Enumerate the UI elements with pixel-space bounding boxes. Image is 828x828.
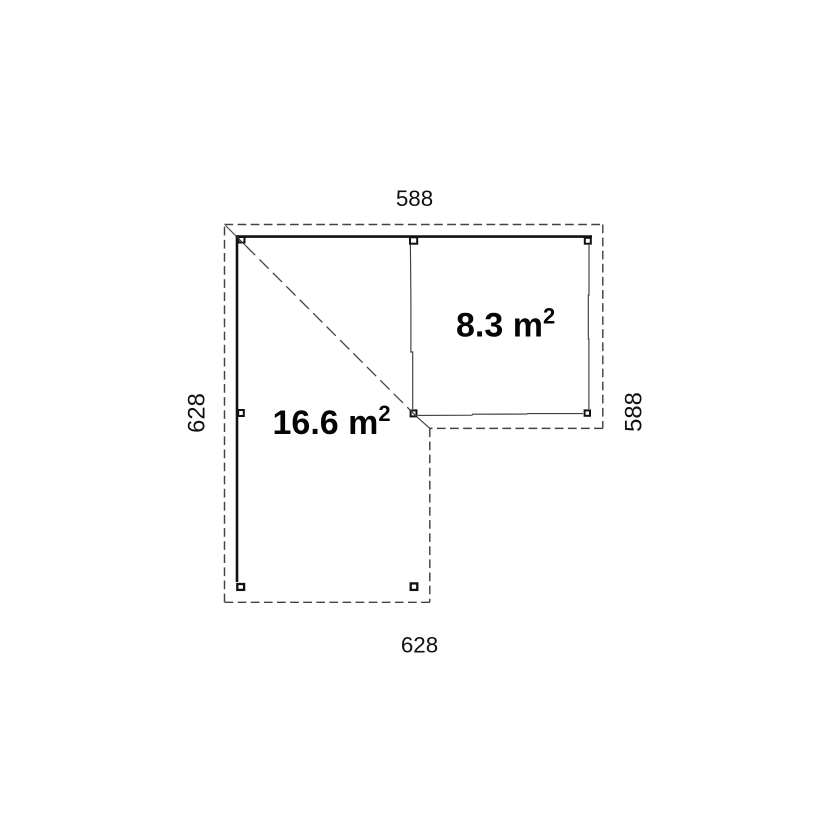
svg-text:588: 588 <box>621 392 648 432</box>
svg-text:8.3 m2: 8.3 m2 <box>456 303 555 344</box>
svg-text:16.6 m2: 16.6 m2 <box>273 401 391 442</box>
svg-text:628: 628 <box>401 633 438 658</box>
svg-text:588: 588 <box>396 186 433 211</box>
svg-text:628: 628 <box>184 393 211 433</box>
